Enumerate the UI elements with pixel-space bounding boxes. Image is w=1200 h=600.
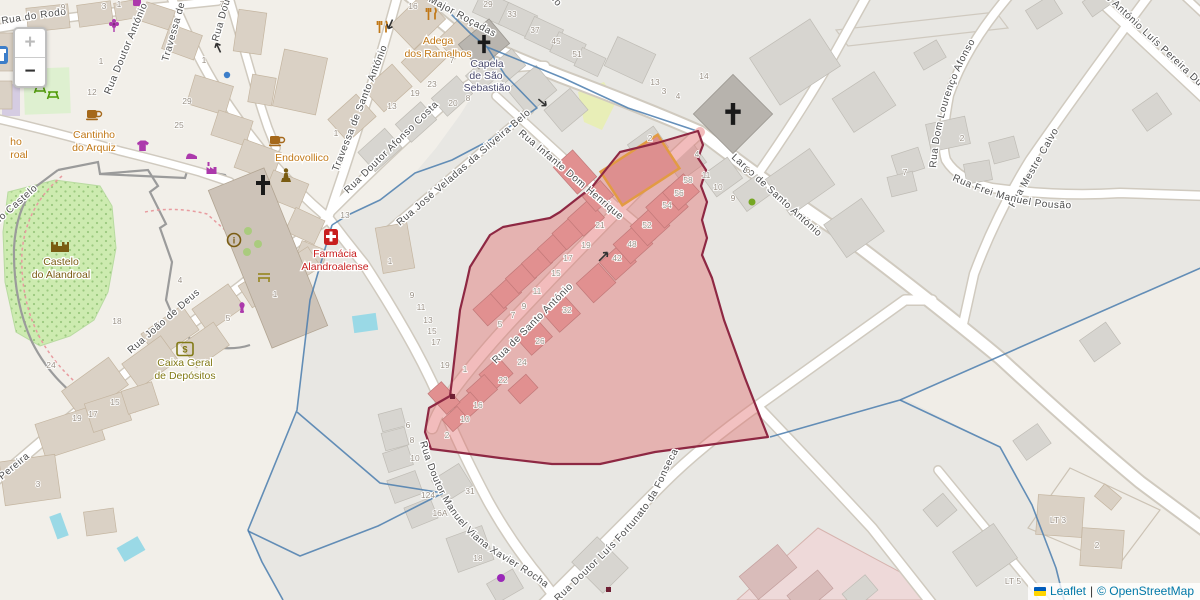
plot-label: LT 3 bbox=[1050, 515, 1066, 525]
house-number: 124 bbox=[421, 490, 435, 500]
poi-label-cantinho: do Arquiz bbox=[72, 142, 116, 154]
house-number: 8 bbox=[466, 93, 471, 103]
house-number: 52 bbox=[642, 220, 652, 230]
poi-label-caixa: de Depósitos bbox=[154, 370, 215, 382]
attribution-bar: Leaflet | © OpenStreetMap bbox=[1028, 583, 1200, 600]
house-number: 37 bbox=[530, 25, 540, 35]
zoom-in-button[interactable]: + bbox=[15, 29, 45, 57]
poi-label-farmacia: Alandroalense bbox=[301, 261, 368, 273]
tree-icon bbox=[254, 240, 262, 248]
house-number: 24 bbox=[46, 360, 56, 370]
house-number: 19 bbox=[72, 413, 82, 423]
leaflet-link[interactable]: Leaflet bbox=[1050, 584, 1086, 598]
house-number: 1 bbox=[334, 128, 339, 138]
house-number: 51 bbox=[572, 49, 582, 59]
house-number: 9 bbox=[410, 290, 415, 300]
pharmacy-icon bbox=[324, 229, 338, 245]
cafe-cup-icon bbox=[86, 110, 102, 120]
svg-text:$: $ bbox=[182, 345, 187, 355]
tree-icon bbox=[749, 199, 756, 206]
house-number: 7 bbox=[903, 167, 908, 177]
poi-label-cut: ho bbox=[10, 136, 22, 148]
ukraine-flag-icon bbox=[1034, 587, 1046, 596]
tree-icon bbox=[243, 248, 251, 256]
house-number: 3 bbox=[102, 1, 107, 11]
poi-label-farmacia: Farmácia bbox=[313, 248, 357, 260]
house-number: 54 bbox=[662, 200, 672, 210]
house-number: 5 bbox=[226, 313, 231, 323]
house-number: 4 bbox=[676, 91, 681, 101]
house-number: 13 bbox=[387, 101, 397, 111]
svg-text:i: i bbox=[233, 236, 236, 246]
house-number: 19 bbox=[410, 88, 420, 98]
poi-label-capela: Capela bbox=[470, 58, 503, 70]
zoom-control: + − bbox=[13, 27, 47, 88]
house-number: 4 bbox=[178, 275, 183, 285]
house-number: 45 bbox=[551, 36, 561, 46]
house-number: 21 bbox=[595, 220, 605, 230]
house-number: 2 bbox=[445, 430, 450, 440]
house-number: 25 bbox=[174, 120, 184, 130]
oneway-arrow-icon bbox=[214, 42, 224, 54]
house-number: 1 bbox=[388, 256, 393, 266]
factory-icon bbox=[207, 162, 217, 174]
house-number: 5 bbox=[498, 319, 503, 329]
house-number: 11 bbox=[702, 170, 711, 180]
house-number: 18 bbox=[473, 553, 483, 563]
house-number: 7 bbox=[220, 0, 225, 9]
house-number: 9 bbox=[61, 2, 66, 12]
house-number: 1 bbox=[117, 0, 122, 9]
poi-label-adega: Adega bbox=[423, 35, 454, 47]
house-number: 19 bbox=[581, 240, 591, 250]
poi-label-capela: de São bbox=[469, 70, 502, 82]
poi-label-endovollico: Endovollico bbox=[275, 152, 329, 164]
house-number: 13 bbox=[650, 77, 660, 87]
house-number: 29 bbox=[182, 96, 192, 106]
house-number: 14 bbox=[699, 71, 709, 81]
house-number: 22 bbox=[498, 375, 508, 385]
house-number: 20 bbox=[448, 98, 458, 108]
plot-label: LT 5 bbox=[1005, 576, 1021, 586]
polygon-vertex bbox=[450, 394, 455, 399]
house-number: 31 bbox=[465, 486, 475, 496]
house-number: 10 bbox=[713, 182, 723, 192]
house-number: 9 bbox=[522, 301, 527, 311]
house-number: 15 bbox=[110, 397, 120, 407]
leaflet-map-canvas[interactable]: i $ bbox=[0, 0, 1200, 600]
poi-label-adega: dos Ramalhos bbox=[404, 48, 471, 60]
shoe-shop-icon bbox=[186, 153, 197, 159]
house-number: 18 bbox=[112, 316, 122, 326]
map-tiles: i $ bbox=[0, 0, 1200, 600]
house-number: 16 bbox=[408, 1, 418, 11]
poi-label-castelo: Castelo bbox=[43, 256, 79, 268]
house-number: 13 bbox=[423, 315, 433, 325]
house-number: 1 bbox=[273, 289, 278, 299]
house-number: 2 bbox=[648, 133, 653, 143]
house-number: 29 bbox=[483, 0, 493, 9]
house-number: 24 bbox=[517, 357, 527, 367]
house-number: 4 bbox=[695, 149, 700, 159]
house-number: 8 bbox=[410, 435, 415, 445]
house-number: 1 bbox=[463, 364, 468, 374]
house-number: 17 bbox=[88, 409, 98, 419]
osm-link[interactable]: © OpenStreetMap bbox=[1097, 584, 1194, 598]
parking-icon bbox=[0, 46, 8, 64]
house-number: 16A bbox=[432, 508, 447, 518]
poi-label-capela: Sebastião bbox=[464, 82, 511, 94]
house-number: 56 bbox=[674, 188, 684, 198]
house-number: 15 bbox=[551, 268, 561, 278]
house-number: 33 bbox=[507, 9, 517, 19]
house-number: 7 bbox=[511, 310, 516, 320]
house-number: 11 bbox=[533, 286, 542, 296]
house-number: 6 bbox=[746, 165, 751, 175]
poi-label-cut: roal bbox=[10, 149, 28, 161]
cafe-cup-icon bbox=[269, 136, 285, 146]
poi-label-caixa: Caixa Geral bbox=[157, 357, 212, 369]
shop-dot-icon bbox=[497, 574, 505, 582]
house-number: 23 bbox=[427, 79, 437, 89]
drinking-water-icon bbox=[224, 72, 230, 78]
house-number: 16 bbox=[473, 400, 483, 410]
polygon-vertex bbox=[606, 587, 611, 592]
house-number: 2 bbox=[1095, 540, 1100, 550]
house-number: 42 bbox=[612, 253, 622, 263]
house-number: 7 bbox=[450, 55, 455, 65]
attribution-divider: | bbox=[1090, 584, 1093, 598]
house-number: 10 bbox=[460, 414, 470, 424]
zoom-out-button[interactable]: − bbox=[15, 57, 45, 86]
house-number: 10 bbox=[410, 453, 420, 463]
house-number: 58 bbox=[683, 175, 693, 185]
house-number: 1 bbox=[202, 55, 207, 65]
house-number: 3 bbox=[662, 86, 667, 96]
house-number: 2 bbox=[960, 133, 965, 143]
house-number: 48 bbox=[627, 239, 637, 249]
poi-label-cantinho: Cantinho bbox=[73, 129, 115, 141]
house-number: 9 bbox=[731, 193, 736, 203]
house-number: 19 bbox=[440, 360, 450, 370]
house-number: 17 bbox=[563, 253, 573, 263]
tree-icon bbox=[244, 227, 252, 235]
house-number: 1 bbox=[99, 56, 104, 66]
house-number: 32 bbox=[562, 305, 572, 315]
house-number: 17 bbox=[431, 337, 441, 347]
house-number: 6 bbox=[406, 420, 411, 430]
house-number: 13 bbox=[340, 210, 350, 220]
house-number: 26 bbox=[535, 336, 545, 346]
house-number: 12 bbox=[87, 87, 97, 97]
house-number: 11 bbox=[417, 302, 426, 312]
poi-label-castelo: do Alandroal bbox=[32, 269, 90, 281]
clothes-shop-icon bbox=[137, 141, 149, 152]
house-number: 15 bbox=[427, 326, 437, 336]
house-number: 3 bbox=[36, 479, 41, 489]
